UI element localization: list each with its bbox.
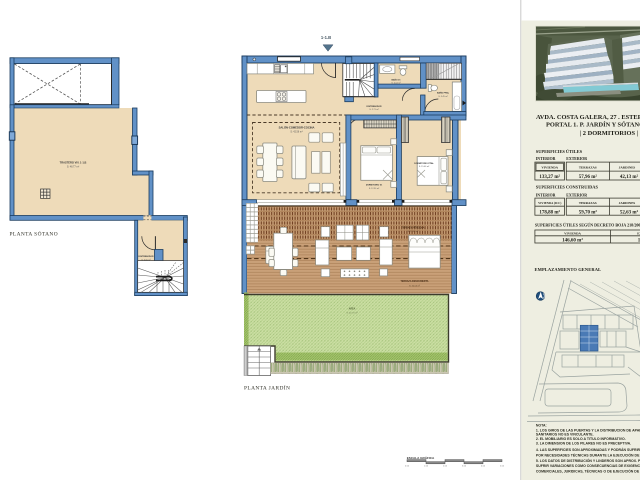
svg-text:SUFRIR VARIACIONES COMO CONSEC: SUFRIR VARIACIONES COMO CONSECUENCIAS DE… [536,464,640,468]
svg-text:JARDINES: JARDINES [619,201,636,205]
svg-text:VIVIENDA: VIVIENDA [564,232,581,236]
svg-text:52,63 m²: 52,63 m² [620,209,639,215]
svg-text:146,60 m²: 146,60 m² [562,238,583,244]
svg-text:BAÑO PPAL: BAÑO PPAL [437,92,450,95]
svg-text:SANITARIOS NO ES VINCULANTE.: SANITARIOS NO ES VINCULANTE. [536,433,594,437]
svg-text:PLANTA SÓTANO: PLANTA SÓTANO [10,229,59,237]
svg-text:59,70 m²: 59,70 m² [579,209,598,215]
svg-text:133,27 m²: 133,27 m² [539,174,560,180]
svg-text:42,13 m²: 42,13 m² [620,174,639,180]
svg-text:S: 15.00 m²: S: 15.00 m² [419,165,430,168]
svg-text:DORMITORIO PPAL: DORMITORIO PPAL [414,162,434,165]
svg-text:JARDINES: JARDINES [619,166,636,170]
svg-text:TERRAZAS: TERRAZAS [579,166,597,170]
svg-text:2. EL MOBILIARIO ES SOLO A TIT: 2. EL MOBILIARIO ES SOLO A TITULO INFORM… [536,437,626,441]
svg-text:4. LAS SUPERFICIES SON APROXIM: 4. LAS SUPERFICIES SON APROXIMADAS Y POD… [536,447,640,452]
svg-text:AREA: AREA [349,308,356,311]
svg-text:S: 27.40 m²: S: 27.40 m² [408,230,419,233]
svg-text:COMERCIALES, JURIDICAS, TÉCNIC: COMERCIALES, JURIDICAS, TÉCNICAS O DE EJ… [536,469,640,474]
svg-text:NOTA:: NOTA: [536,424,547,428]
svg-text:SUPERFICIES ÚTILES: SUPERFICIES ÚTILES [536,149,583,154]
svg-text:5. LOS DATOS DE DISTRIBUCIÓN Y: 5. LOS DATOS DE DISTRIBUCIÓN Y LINDEROS … [536,458,640,463]
svg-text:EXTERIOR: EXTERIOR [566,193,587,197]
svg-text:178,88 m²: 178,88 m² [539,209,560,215]
svg-text:TERRAZAS: TERRAZAS [579,201,597,205]
svg-text:AVDA. COSTA GALERA, 27 . ESTEP: AVDA. COSTA GALERA, 27 . ESTEPONA [536,114,640,121]
svg-text:ESCALA GRÁFICA: ESCALA GRÁFICA [407,455,435,460]
svg-text:VIVIENDA (ICC): VIVIENDA (ICC) [538,201,561,205]
svg-text:BAÑO 01: BAÑO 01 [391,79,401,82]
svg-text:INTERIOR: INTERIOR [536,157,556,161]
svg-text:TRASTERO VIV. 1-1.B: TRASTERO VIV. 1-1.B [60,161,87,165]
svg-text:S: 48.77 m²: S: 48.77 m² [67,166,80,169]
svg-text:INTERIOR: INTERIOR [536,193,556,197]
svg-text:1-1.B: 1-1.B [321,35,331,40]
svg-text:VIVIENDA: VIVIENDA [541,166,558,170]
svg-text:S: 2.71 m²: S: 2.71 m² [369,108,379,111]
svg-text:S: 5.45 m²: S: 5.45 m² [438,95,448,98]
svg-text:POR NECESIDADES TÉCNICAS DURAN: POR NECESIDADES TÉCNICAS DURANTE LA EJEC… [536,453,640,458]
svg-text:DISTRIBUIDOR: DISTRIBUIDOR [138,256,154,258]
svg-text:S: 12.30 m²: S: 12.30 m² [369,187,380,190]
svg-text:TERRAZA DESCUBIERTA: TERRAZA DESCUBIERTA [401,280,429,283]
svg-text:SUPERFICIES CONSTRUIDAS: SUPERFICIES CONSTRUIDAS [536,185,599,190]
svg-text:S: 42.56 m²: S: 42.56 m² [290,130,303,133]
svg-text:3. LA DIMENSION DE LOS PILARES: 3. LA DIMENSION DE LOS PILARES NO ES PRE… [536,442,631,446]
svg-text:S: 32.53 m²: S: 32.53 m² [409,284,420,287]
svg-text:S: 42.73 m²: S: 42.73 m² [346,312,358,315]
svg-text:EXTERIOR: EXTERIOR [566,157,587,161]
svg-text:PLANTA JARDÍN: PLANTA JARDÍN [244,384,290,392]
svg-text:SUPERFICIES ÚTILES SEGÚN DECRE: SUPERFICIES ÚTILES SEGÚN DECRETO BOJA 21… [535,222,640,227]
svg-text:DISTRIBUIDOR: DISTRIBUIDOR [366,106,382,108]
svg-text:EMPLAZAMIENTO GENERAL: EMPLAZAMIENTO GENERAL [535,267,602,272]
svg-text:57,96 m²: 57,96 m² [579,174,598,180]
svg-text:TERRAZA PÉRGOLA: TERRAZA PÉRGOLA [402,227,425,230]
svg-text:DORMITORIO 01: DORMITORIO 01 [366,185,383,187]
svg-text:PORTAL 1. P. JARDÍN Y SÓTANO.: PORTAL 1. P. JARDÍN Y SÓTANO. [546,121,640,129]
svg-text:| 2 DORMITORIOS |: | 2 DORMITORIOS | [580,130,638,137]
